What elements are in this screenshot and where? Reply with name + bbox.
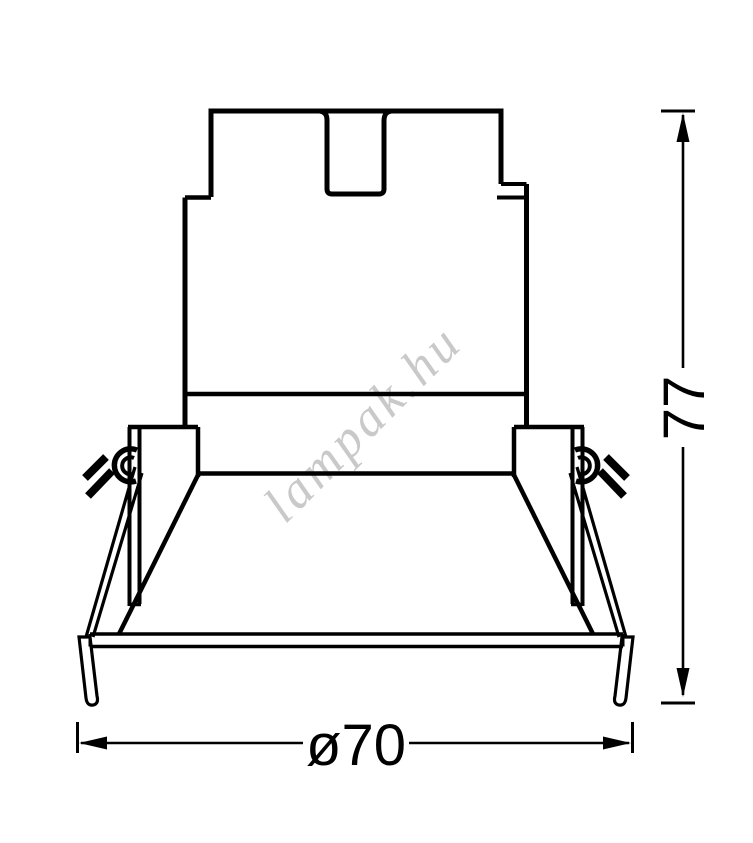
height-dim-label: 77	[652, 376, 717, 441]
diameter-dimension: ø70	[78, 713, 633, 778]
left-spring-clip	[79, 449, 142, 705]
right-spring-arm-inner	[570, 473, 619, 637]
lamp-holder-outline	[185, 109, 527, 426]
left-spring-arm-inner	[93, 473, 142, 637]
diameter-dim-arrow-right	[603, 737, 631, 750]
height-dim-arrow-down	[677, 668, 690, 697]
downlight-dimension-diagram: lampak.hu	[0, 0, 753, 843]
drawing-canvas: lampak.hu	[0, 0, 753, 843]
diameter-dim-arrow-left	[79, 737, 107, 750]
right-spring-clip	[570, 449, 633, 705]
diameter-dim-label: ø70	[306, 713, 406, 778]
height-dimension: 77	[652, 111, 717, 703]
height-dim-arrow-up	[677, 113, 690, 142]
watermark-text: lampak.hu	[253, 313, 473, 533]
holder-center-slot	[320, 111, 391, 194]
